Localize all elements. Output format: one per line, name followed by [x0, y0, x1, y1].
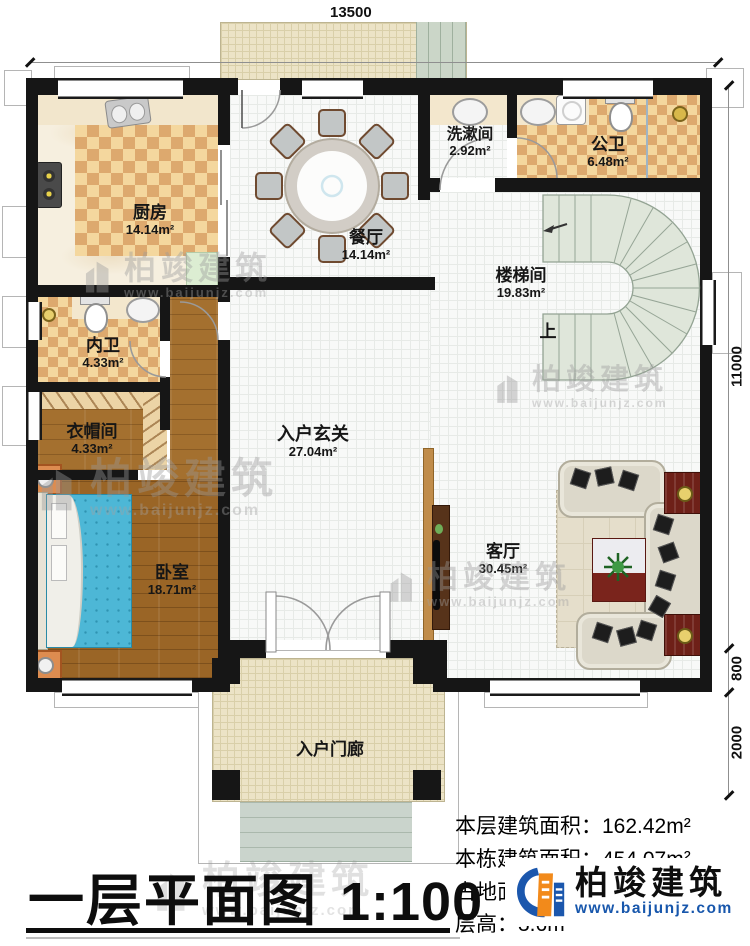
room-label-cloakroom: 衣帽间4.33m² — [67, 422, 118, 456]
wall — [26, 678, 62, 692]
dimension-right-800: 800 — [729, 649, 746, 689]
bed — [46, 494, 132, 648]
room-label-washroom: 洗漱间2.92m² — [447, 126, 494, 159]
brand-name: 柏竣建筑 — [575, 866, 733, 901]
bed-pillow — [51, 503, 67, 539]
coffee-table — [592, 538, 646, 602]
porch-column — [413, 658, 441, 684]
room-label-inner-bath: 内卫4.33m² — [82, 336, 123, 370]
toilet-inner-bowl — [84, 303, 108, 333]
dimension-line-right — [728, 85, 729, 795]
bedroom-window — [62, 678, 192, 696]
fridge — [186, 252, 218, 288]
room-label-bedroom: 卧室18.71m² — [148, 563, 196, 597]
dimension-right-2000: 2000 — [729, 718, 746, 768]
wall — [363, 78, 563, 95]
dimension-right-total: 11000 — [729, 342, 746, 392]
floor-plan-page: 厨房14.14m² 餐厅14.14m² 洗漱间2.92m² 公卫6.48m² 楼… — [0, 0, 750, 946]
dimension-tick — [713, 57, 723, 67]
cloakroom-window — [26, 392, 42, 440]
wall — [218, 640, 266, 658]
bed-pillow — [51, 545, 67, 581]
wall — [507, 95, 517, 138]
porch-floor — [212, 658, 445, 802]
inner-basin — [126, 297, 160, 323]
wall — [160, 377, 170, 430]
tv — [433, 540, 440, 610]
wall — [218, 340, 230, 640]
cloakroom-rack — [38, 392, 143, 409]
title-underline — [26, 928, 450, 933]
brand-logo-icon — [511, 862, 567, 922]
side-table-plant — [677, 628, 693, 644]
window-sill — [2, 386, 28, 446]
shower-head — [672, 106, 688, 122]
kitchen-window — [58, 78, 183, 99]
side-table-plant — [677, 486, 693, 502]
stair-up-label: 上 — [540, 322, 557, 342]
title-text: 一层平面图 — [28, 856, 318, 937]
stove — [36, 162, 62, 208]
wall — [418, 178, 440, 192]
wall — [230, 277, 435, 290]
window-sill — [2, 206, 28, 258]
dimension-top: 13500 — [330, 4, 372, 21]
dimension-tick — [724, 790, 734, 800]
window-sill — [2, 296, 28, 348]
brand-logo: 柏竣建筑 www.baijunjz.com — [505, 858, 739, 926]
wall — [160, 297, 170, 341]
wall — [26, 78, 38, 302]
wall — [700, 345, 712, 692]
wall — [26, 382, 170, 392]
room-label-living: 客厅30.45m² — [479, 542, 527, 576]
stair-window — [700, 280, 716, 345]
living-window — [490, 678, 640, 696]
corridor-floor — [170, 297, 218, 480]
wall — [386, 640, 447, 658]
room-label-public-bath: 公卫6.48m² — [587, 135, 628, 169]
terrace-step — [452, 22, 466, 78]
room-label-foyer: 入户玄关27.04m² — [277, 424, 349, 460]
wall — [495, 178, 712, 192]
wall — [26, 470, 138, 480]
bath-basin — [520, 98, 556, 126]
wall — [26, 285, 230, 297]
drawing-title: 一层平面图 1:100 — [28, 856, 483, 937]
dining-window — [302, 78, 363, 99]
title-scale: 1:100 — [340, 871, 483, 933]
room-label-dining: 餐厅14.14m² — [342, 228, 390, 262]
title-underline-thin — [26, 937, 460, 939]
dimension-line-top — [30, 62, 718, 63]
dimension-tick — [724, 687, 734, 697]
wall — [218, 78, 230, 145]
porch-column — [212, 770, 240, 800]
inner-bath-window — [26, 302, 42, 340]
toilet-public-bowl — [609, 102, 633, 132]
bath-window — [563, 78, 653, 99]
shower-glass — [646, 96, 648, 178]
brand-url: www.baijunjz.com — [575, 900, 733, 918]
wall — [280, 78, 302, 95]
sofa-pillow — [594, 466, 614, 486]
room-label-porch: 入户门廊 — [296, 740, 364, 760]
room-label-kitchen: 厨房14.14m² — [126, 203, 174, 237]
washing-machine — [556, 95, 586, 125]
decor-dot — [435, 524, 443, 534]
porch-column — [413, 770, 441, 800]
wall — [218, 257, 230, 302]
wall — [640, 678, 712, 692]
info-floor-area: 本层建筑面积：162.42m² — [455, 810, 691, 840]
dining-floor — [230, 95, 430, 277]
room-label-stairwell: 楼梯间19.83m² — [496, 266, 547, 300]
pendant-lamp — [42, 308, 56, 322]
washroom-basin — [452, 98, 488, 126]
porch-column — [212, 658, 240, 684]
wall — [443, 678, 490, 692]
